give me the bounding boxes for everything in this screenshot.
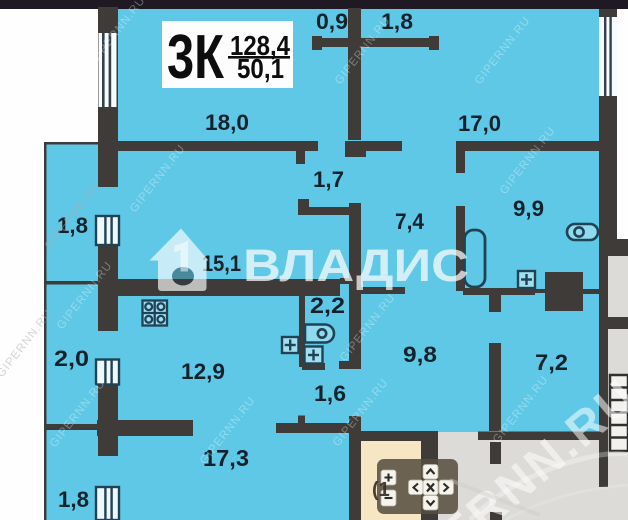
svg-text:0,9: 0,9 — [316, 9, 348, 34]
svg-text:1,6: 1,6 — [314, 381, 346, 406]
svg-text:7,2: 7,2 — [535, 350, 568, 375]
svg-text:9,8: 9,8 — [403, 342, 437, 367]
svg-text:3К: 3К — [167, 23, 224, 92]
svg-text:9,9: 9,9 — [513, 196, 544, 221]
svg-text:1,8: 1,8 — [58, 487, 89, 512]
svg-text:ВЛАДИС: ВЛАДИС — [243, 240, 469, 291]
svg-text:17,0: 17,0 — [458, 111, 501, 136]
svg-text:2,0: 2,0 — [54, 346, 89, 371]
svg-text:(1: (1 — [372, 479, 390, 501]
svg-text:50,1: 50,1 — [237, 53, 284, 84]
svg-text:2,2: 2,2 — [310, 293, 345, 318]
svg-text:18,0: 18,0 — [205, 110, 249, 135]
svg-text:12,9: 12,9 — [181, 359, 225, 384]
svg-text:1,7: 1,7 — [313, 167, 344, 192]
svg-text:15,1: 15,1 — [202, 251, 241, 276]
svg-text:7,4: 7,4 — [395, 209, 425, 234]
